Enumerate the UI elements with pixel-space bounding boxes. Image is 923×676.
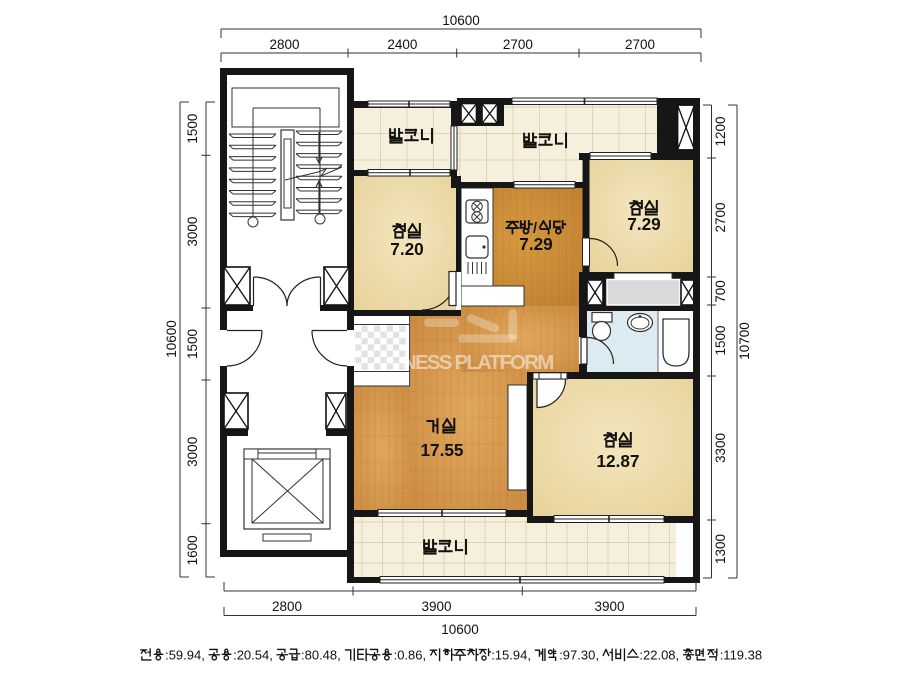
svg-text:1200: 1200 xyxy=(713,116,728,146)
svg-text:700: 700 xyxy=(713,280,728,303)
svg-text:NESS PLATFORM: NESS PLATFORM xyxy=(402,351,553,374)
svg-text:2700: 2700 xyxy=(713,202,728,232)
svg-text:1500: 1500 xyxy=(185,329,200,359)
svg-text::80.48,: :80.48, xyxy=(301,648,344,663)
svg-text:2800: 2800 xyxy=(272,599,302,614)
svg-text:3300: 3300 xyxy=(713,433,728,463)
svg-text::0.86,: :0.86, xyxy=(394,648,430,663)
svg-text:2700: 2700 xyxy=(503,37,533,52)
svg-text:3000: 3000 xyxy=(185,217,200,247)
svg-text:2700: 2700 xyxy=(625,37,655,52)
svg-text::119.38: :119.38 xyxy=(720,648,762,663)
svg-text:12.87: 12.87 xyxy=(596,451,639,471)
svg-text::59.94,: :59.94, xyxy=(165,648,208,663)
svg-text:7.20: 7.20 xyxy=(390,239,423,259)
svg-text:2400: 2400 xyxy=(387,37,417,52)
svg-text:7.29: 7.29 xyxy=(627,214,660,234)
svg-text:2800: 2800 xyxy=(269,37,299,52)
svg-text:10600: 10600 xyxy=(441,622,479,637)
svg-text:3000: 3000 xyxy=(185,437,200,467)
svg-text::15.94,: :15.94, xyxy=(491,648,534,663)
svg-text:10600: 10600 xyxy=(164,320,179,358)
svg-text::20.54,: :20.54, xyxy=(233,648,276,663)
svg-text::97.30,: :97.30, xyxy=(559,648,602,663)
svg-text:3900: 3900 xyxy=(421,599,451,614)
svg-text:3900: 3900 xyxy=(594,599,624,614)
svg-text::22.08,: :22.08, xyxy=(639,648,682,663)
svg-text:10600: 10600 xyxy=(442,13,480,28)
svg-text:10700: 10700 xyxy=(737,322,752,360)
svg-text:7.29: 7.29 xyxy=(519,234,552,254)
svg-text:17.55: 17.55 xyxy=(420,440,463,460)
svg-text:1300: 1300 xyxy=(713,534,728,564)
svg-text:1500: 1500 xyxy=(713,325,728,355)
svg-text:1500: 1500 xyxy=(185,114,200,144)
svg-text:1600: 1600 xyxy=(185,535,200,565)
